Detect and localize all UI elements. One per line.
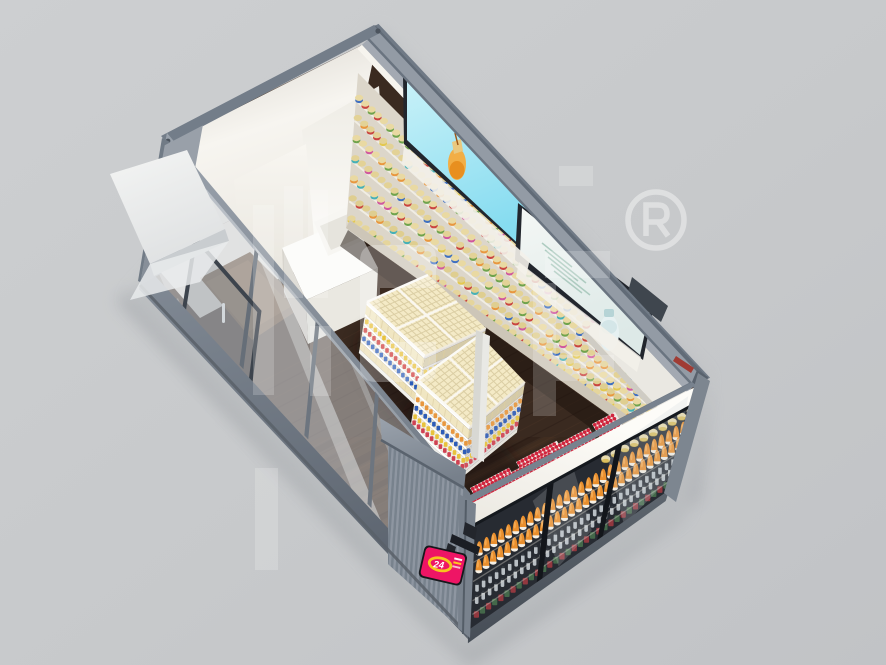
svg-text:24: 24 [432,559,446,572]
